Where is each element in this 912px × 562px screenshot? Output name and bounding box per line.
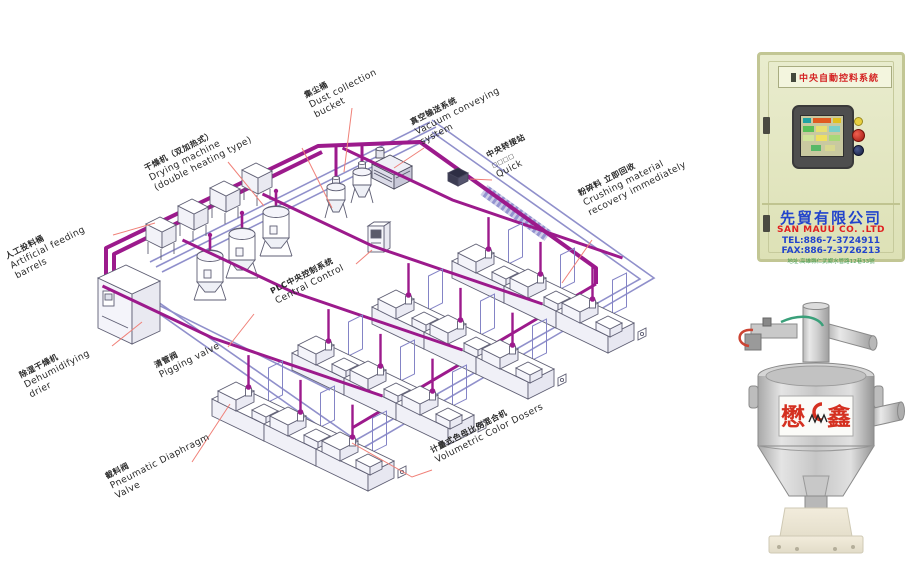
panel-sign: 中央自動控料系統 [778,66,892,88]
screen-graphic [825,145,835,151]
company-name-en: SAN MAUU CO. .LTD [760,225,902,235]
side-inlet-pipe [829,324,873,350]
screen-graphic [816,135,827,141]
screen-graphic [833,118,841,123]
door-divider [762,203,900,205]
injection-molding-machine [316,432,406,491]
clamp-right [874,386,883,408]
injection-molding-machine [556,294,646,353]
brand-char-left: 懋 [781,403,805,431]
touchscreen-bezel [792,105,854,169]
machine-conduit-frame [349,315,363,356]
vacuum-pump-station [372,147,412,189]
screen-graphic [803,126,814,132]
brand-plate: 懋 鑫 [779,396,853,436]
screen-graphic [829,135,840,141]
brand-char-right: 鑫 [827,403,851,431]
injection-molding-machine [476,340,566,399]
hopper-loader-photo: 懋 鑫 [723,298,909,560]
label-feeding-barrels: 人工投料桶Artificial feedingbarrels [3,214,91,281]
machine-conduit-frame [481,294,495,335]
label-dehumidifying-dryer: 除湿干燥机Dehumidifyingdrier [17,338,96,400]
feeding-barrel-stand [210,181,240,224]
indicator-lamp [854,117,863,126]
hopper-loader-graphic: 懋 鑫 [723,298,909,560]
screen-graphic [829,126,840,132]
label-drying-machine: 干燥机（双加热式）Drying machine(double heating t… [142,115,253,194]
touchscreen[interactable] [800,115,844,157]
machine-conduit-frame [373,411,387,452]
company-address: 地址:高雄縣仁武鄉水管路12巷33號 [760,257,902,265]
label-dust-bucket: 集尘桶Dust collectionbucket [301,57,383,121]
system-diagram: 人工投料桶Artificial feedingbarrels干燥机（双加热式）D… [0,0,740,562]
panel-sign-text: 中央自動控料系統 [799,71,879,84]
company-fax: FAX:886-7-3726213 [760,246,902,256]
label-transfer-station: 中央转接站□□□□Quick [484,132,537,181]
cabinet-hinge [763,117,770,134]
dust-collector [325,176,347,218]
red-push-button[interactable] [852,129,865,142]
central-transfer-station [448,168,468,186]
machine-conduit-frame [401,340,415,381]
inlet-pipe [803,306,829,362]
sign-lock-icon [791,73,796,82]
screen-graphic [813,118,831,123]
feeding-barrel-stand [146,217,176,260]
dark-push-button[interactable] [853,145,864,156]
label-crushing-recovery: 粉碎料 立即回收Crushing materialrecovery immedi… [576,140,688,219]
machine-conduit-frame [509,223,523,264]
label-pneumatic-valve: 截料阀Pneumatic DiaphragmValve [103,422,216,501]
screen-graphic [803,118,811,123]
machine-conduit-frame [453,365,467,406]
machine-conduit-frame [429,269,443,310]
screen-graphic [816,126,827,132]
base-stand [769,496,863,553]
screen-graphic [811,145,821,151]
screen-graphic [803,135,814,141]
page: { "diagram": { "labels": { "feeding_barr… [0,0,912,562]
company-tel: TEL:886-7-3724911 [760,236,902,246]
clamp-left [749,386,758,408]
label-vacuum-system: 真空输送系统Vacuum conveyingsystem [408,75,506,147]
control-panel-photo: 中央自動控料系統 先貿有限公司 SAN MAUU CO. .LTD TEL:88… [757,52,905,262]
